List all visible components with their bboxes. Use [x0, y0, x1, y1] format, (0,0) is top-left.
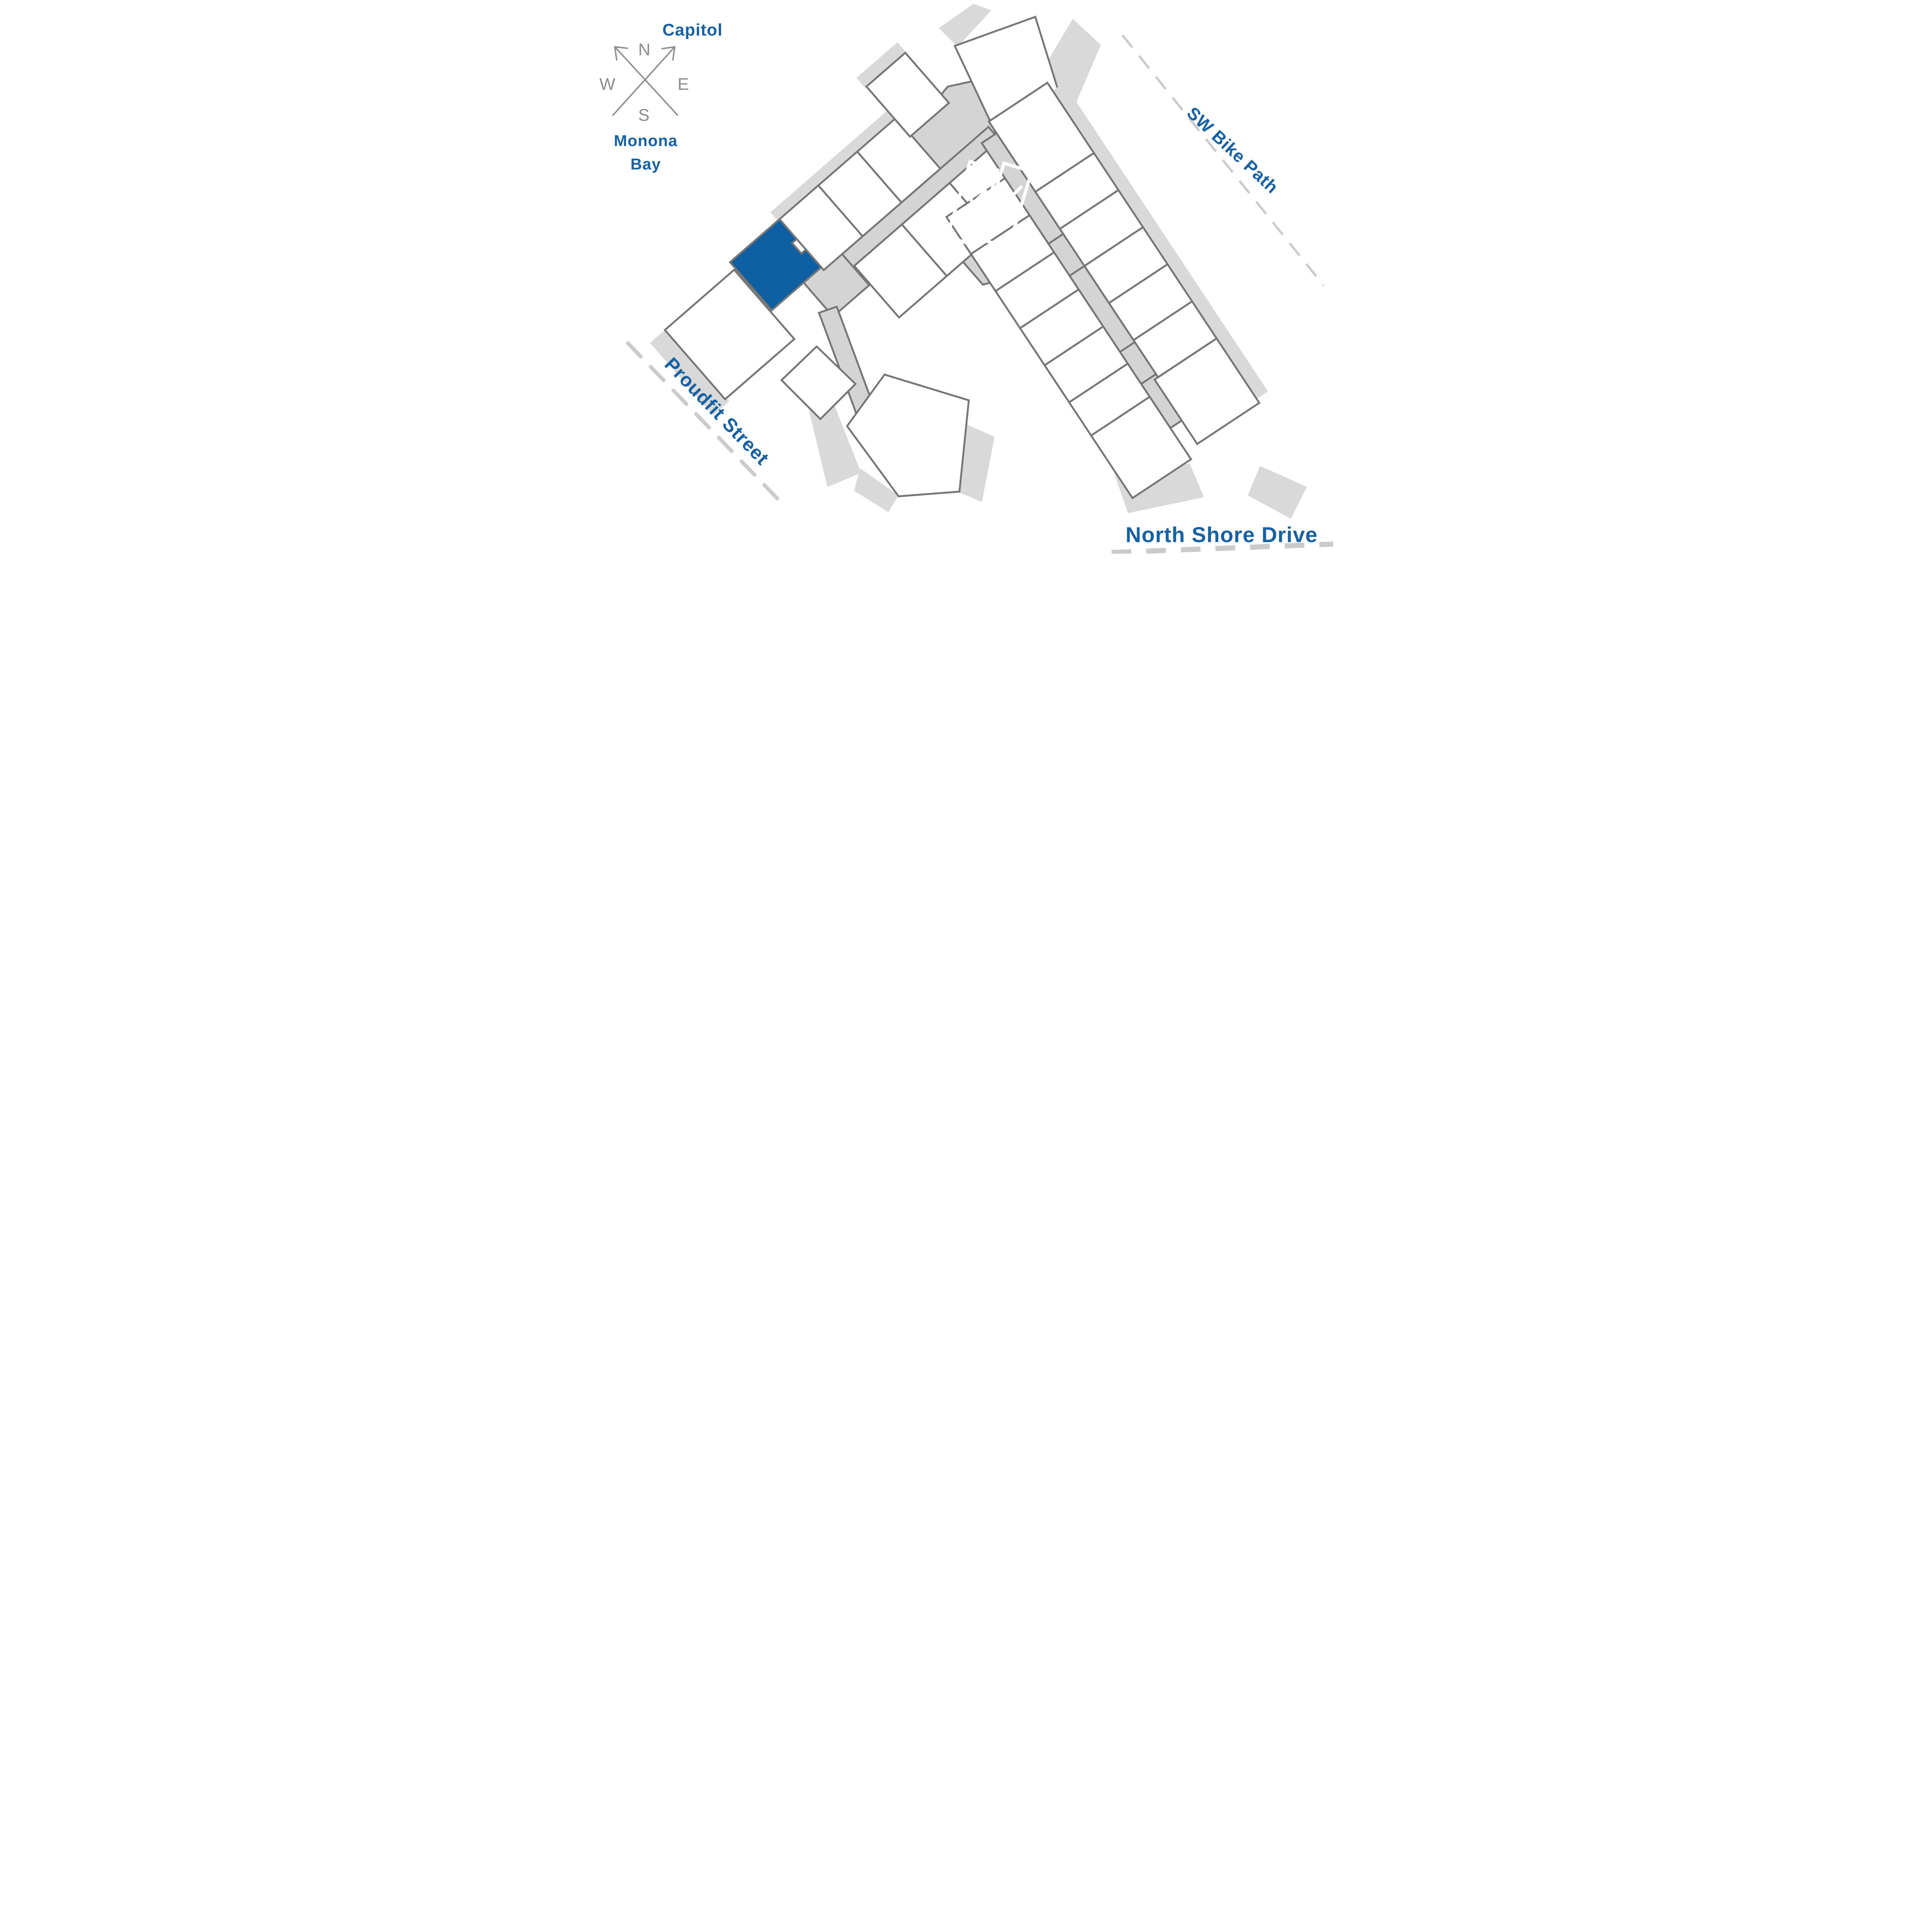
compass-south-label: S — [638, 106, 650, 125]
compass-west-label: W — [599, 75, 616, 94]
balcony-strip — [1248, 466, 1307, 519]
compass-rose-icon: N W E S — [599, 41, 689, 125]
monona-bay-label-line1: Monona — [614, 132, 678, 150]
monona-bay-label-line2: Bay — [631, 155, 661, 173]
north-shore-drive-label: North Shore Drive — [1126, 523, 1318, 547]
floorplan-locator-map: N W E S Capitol Monona Bay SW Bike Path … — [599, 0, 1333, 554]
compass-east-label: E — [678, 75, 689, 94]
capitol-label: Capitol — [662, 21, 723, 39]
sw-bike-path-label: SW Bike Path — [1183, 103, 1282, 197]
site-plan-svg: N W E S Capitol Monona Bay SW Bike Path … — [599, 0, 1333, 554]
compass-north-label: N — [638, 41, 651, 59]
